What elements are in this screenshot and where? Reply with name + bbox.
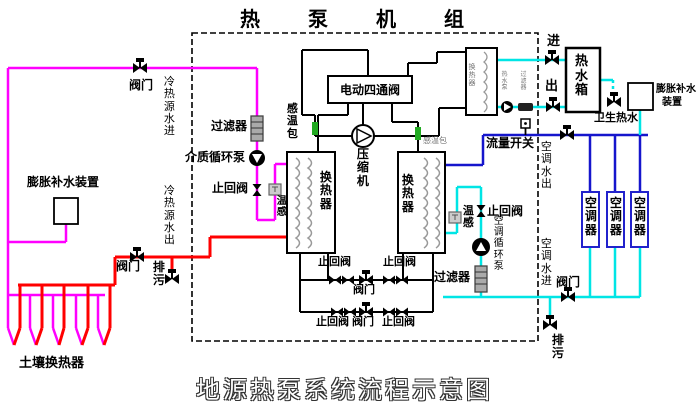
check-valve-icon <box>383 276 395 285</box>
label-ground-supply-pipe: 冷热源水进 <box>163 76 176 138</box>
label-check-upper-right: 止回阀 <box>383 256 416 268</box>
label-drain-left: 排污 <box>152 261 166 288</box>
flow-switch-icon <box>521 119 530 135</box>
label-hx-right: 换热器 <box>401 174 415 214</box>
temp-sensor-icon-left <box>269 184 281 195</box>
label-ground-return-pipe: 冷热源水出 <box>163 185 176 247</box>
label-ac-unit-1: 空调器 <box>584 197 598 237</box>
label-ac-pump: 空调循环泵 <box>493 216 505 272</box>
ground-supply-piping <box>8 68 292 345</box>
label-hw-filter: 过滤器 <box>520 72 527 92</box>
label-sensing-bulb-right: 感温包 <box>423 137 447 145</box>
label-check-upper-left: 止回阀 <box>318 256 351 268</box>
label-hot-water-tank: 热水箱 <box>574 55 589 99</box>
label-hw-inlet: 进 <box>547 35 560 49</box>
label-flow-switch: 流量开关 <box>486 137 534 150</box>
expansion-device-right-box <box>628 83 653 110</box>
label-ac-water-out: 空调水出 <box>540 141 553 190</box>
label-valve-upper: 阀门 <box>353 284 375 296</box>
check-valve-icon <box>329 276 341 285</box>
label-sensing-bulb-left: 感温包 <box>286 103 299 140</box>
diagram-title-top: 热泵机组 <box>240 3 512 32</box>
label-hw-pump: 热水泵 <box>501 72 508 92</box>
valve-icon-sanitary <box>607 92 621 107</box>
label-valve-ac-return: 阀门 <box>556 276 580 289</box>
label-check-lower-right: 止回阀 <box>382 316 415 328</box>
label-soil-heat-exchanger: 土壤换热器 <box>19 357 84 371</box>
valve-icon-hw-in <box>545 50 559 65</box>
label-check-lower-left: 止回阀 <box>316 316 349 328</box>
valve-icon-hw-out <box>546 97 560 112</box>
drain-valve-icon-right <box>543 315 557 330</box>
label-expansion-device-left: 膨胀补水装置 <box>27 176 99 189</box>
diagram-canvas: 热泵机组 地源热泵系统流程示意图 阀门 冷热源水进 膨胀补水装置 冷热源水出 阀… <box>0 0 700 409</box>
label-four-way-valve: 电动四通阀 <box>328 76 412 103</box>
check-valve-icon-main <box>253 184 262 196</box>
compressor-icon <box>352 125 374 147</box>
drain-valve-icon-left <box>165 269 179 284</box>
pump-icon-hot-water <box>501 101 513 113</box>
sensing-bulb-icon-right <box>415 127 421 140</box>
label-temp-sensor-left: 温感 <box>276 196 288 218</box>
label-ac-water-in: 空调水进 <box>540 238 553 287</box>
label-temp-sensor-right: 温感 <box>462 205 475 230</box>
label-filter-ac: 过滤器 <box>434 271 470 284</box>
label-ac-unit-3: 空调器 <box>633 197 647 237</box>
valve-icon-ground-supply <box>133 58 147 73</box>
temp-sensor-icon-right <box>449 212 461 223</box>
label-drain-right: 排污 <box>551 334 565 361</box>
valve-icon-ac-return <box>561 287 575 302</box>
ground-return-piping <box>14 237 292 345</box>
pump-icon-ac <box>472 238 490 256</box>
label-filter-main: 过滤器 <box>211 120 247 133</box>
pump-icon-medium <box>249 150 265 166</box>
check-valve-icon-ac <box>477 205 486 217</box>
label-expansion-device-right-1: 膨胀补水 <box>656 85 696 96</box>
label-check-valve-main: 止回阀 <box>212 182 248 195</box>
filter-icon-hot-water <box>518 103 533 111</box>
label-expansion-device-right-2: 装置 <box>662 98 682 109</box>
filter-icon-ac <box>475 266 487 292</box>
label-valve-lower: 阀门 <box>352 316 374 328</box>
label-medium-pump: 介质循环泵 <box>185 151 245 164</box>
label-compressor: 压缩机 <box>356 148 370 188</box>
label-hw-outlet: 出 <box>545 80 558 94</box>
valve-icon-ac-supply <box>560 125 574 140</box>
label-plate-hx: 换热器 <box>468 64 476 87</box>
sensing-bulb-icon-left <box>312 122 318 135</box>
filter-icon-main <box>251 116 263 141</box>
label-sanitary-hot-water: 卫生热水 <box>594 112 638 124</box>
label-ground-return-valve: 阀门 <box>116 260 140 273</box>
label-ground-supply-valve: 阀门 <box>129 79 153 92</box>
diagram-title-bottom: 地源热泵系统流程示意图 <box>196 370 493 405</box>
label-ac-unit-2: 空调器 <box>609 197 623 237</box>
expansion-device-left-box <box>54 198 78 224</box>
label-hx-left: 换热器 <box>319 171 333 211</box>
